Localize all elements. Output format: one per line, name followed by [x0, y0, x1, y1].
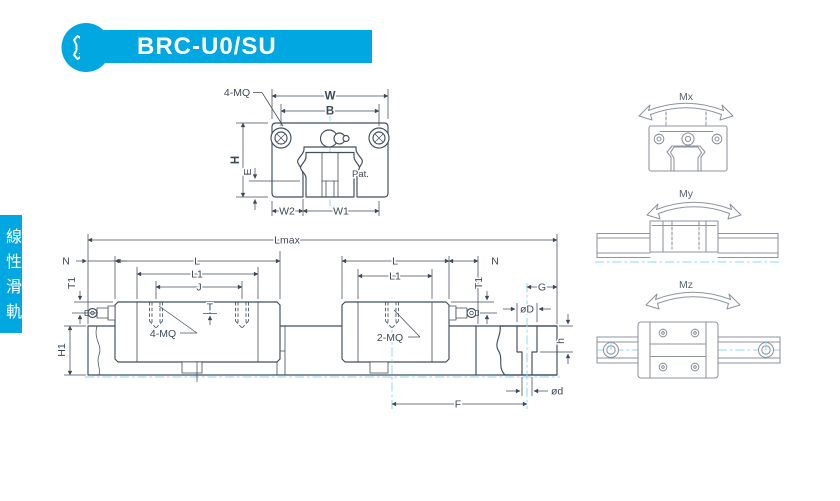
label-n-right: N: [491, 256, 499, 268]
label-2mq: 2-MQ: [377, 332, 403, 344]
front-label-4mq: 4-MQ: [224, 87, 250, 99]
label-l1-left: L1: [191, 269, 203, 281]
side-block-right: [342, 302, 479, 409]
front-label-w1: W1: [333, 206, 349, 218]
label-bore-depth: h: [555, 338, 567, 344]
label-4mq-side: 4-MQ: [150, 328, 176, 340]
mx-moment-arrow-icon: [639, 103, 733, 120]
front-label-pat: Pat.: [352, 169, 369, 180]
label-hole-dia: ød: [551, 386, 563, 398]
technical-drawing: 4-MQ W B H E W2 W1 Pat.: [0, 0, 840, 501]
label-h1: H1: [56, 343, 68, 357]
side-view: Lmax N L L1 J T1 H1 T 4-MQ L N L1 T1 2-M…: [56, 234, 573, 411]
label-bore-dia: øD: [520, 304, 534, 316]
front-label-h: H: [230, 156, 242, 164]
right-grease-nipple-icon: [449, 306, 479, 320]
rail-section-hatch: [497, 326, 557, 375]
label-my: My: [679, 188, 694, 200]
label-t1-left: T1: [66, 277, 78, 289]
front-label-e: E: [242, 168, 254, 175]
front-view: 4-MQ W B H E W2 W1 Pat.: [224, 87, 389, 218]
moment-mx-view: Mx: [639, 91, 733, 171]
label-l1-right: L1: [389, 271, 401, 283]
moment-my-view: My: [595, 188, 780, 262]
label-t1-right: T1: [473, 277, 485, 289]
front-rail-profile: [301, 153, 360, 198]
label-mx: Mx: [679, 91, 694, 103]
label-t: T: [207, 302, 214, 314]
label-l-right: L: [392, 256, 398, 268]
label-n-left: N: [62, 256, 70, 268]
side-block-left: [85, 302, 280, 382]
front-screw-right: [369, 128, 389, 148]
label-j: J: [196, 282, 201, 294]
mz-rail-hole-right: [759, 341, 774, 359]
label-mz: Mz: [679, 279, 693, 291]
label-g: G: [538, 282, 546, 294]
front-label-w2: W2: [279, 206, 295, 218]
label-lmax: Lmax: [274, 235, 300, 247]
rail-section-detail: [497, 283, 557, 409]
my-moment-arrow-icon: [647, 202, 741, 219]
front-screw-left: [271, 128, 291, 148]
label-f: F: [455, 399, 461, 411]
moment-mz-view: Mz: [597, 279, 780, 378]
label-l-left: L: [194, 256, 200, 268]
mz-moment-arrow-icon: [646, 292, 740, 309]
front-label-w: W: [325, 91, 336, 103]
mz-rail-hole-left: [604, 341, 619, 359]
rail-break-line: [96, 326, 100, 375]
front-label-b: B: [326, 106, 334, 118]
catalog-page: A BRC-U0/SU 線性滑軌: [0, 0, 840, 501]
